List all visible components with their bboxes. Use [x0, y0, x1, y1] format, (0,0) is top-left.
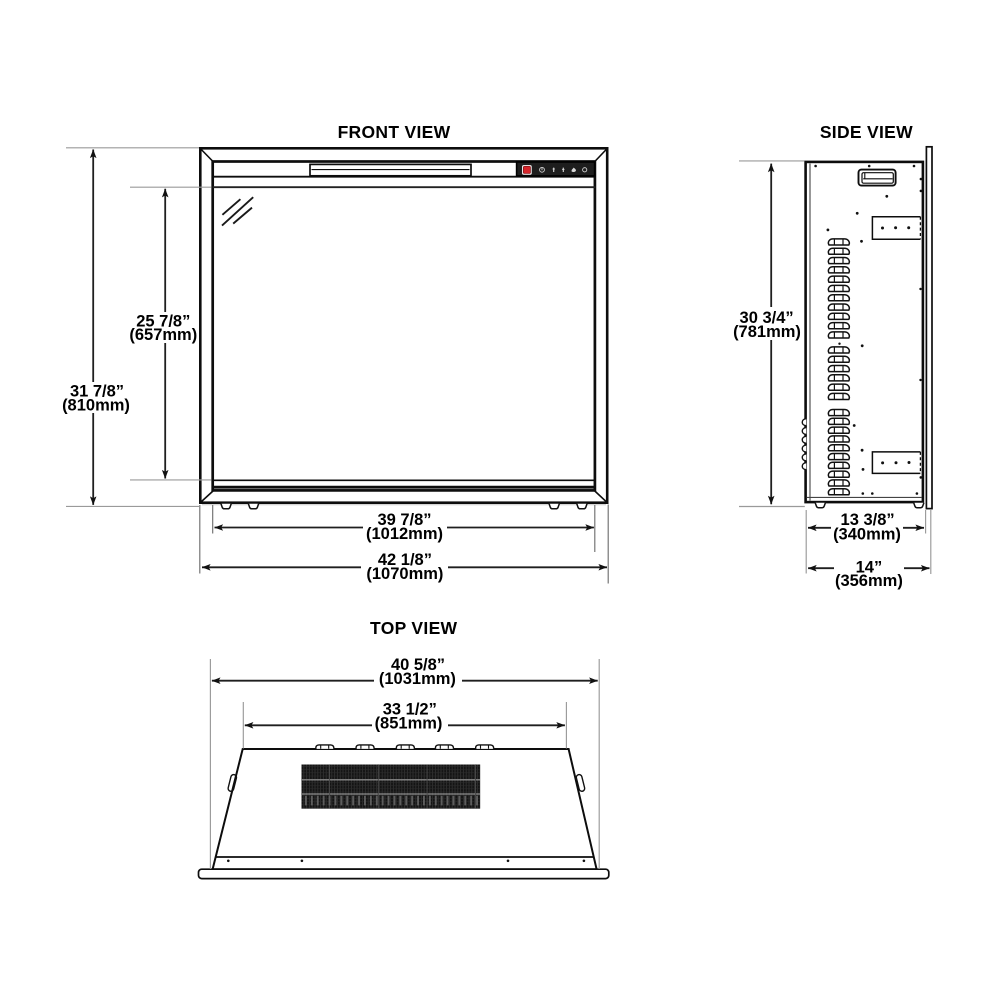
svg-text:(810mm): (810mm)	[62, 396, 130, 414]
svg-text:FRONT VIEW: FRONT VIEW	[338, 122, 451, 142]
svg-text:(1070mm): (1070mm)	[366, 565, 443, 583]
svg-text:(340mm): (340mm)	[833, 525, 901, 543]
svg-text:(1031mm): (1031mm)	[379, 670, 456, 688]
svg-text:SIDE VIEW: SIDE VIEW	[820, 122, 913, 142]
svg-text:(657mm): (657mm)	[129, 326, 197, 344]
svg-text:(356mm): (356mm)	[835, 572, 903, 590]
svg-text:(851mm): (851mm)	[375, 715, 443, 733]
svg-text:TOP VIEW: TOP VIEW	[370, 618, 458, 638]
svg-text:(1012mm): (1012mm)	[366, 525, 443, 543]
svg-text:(781mm): (781mm)	[733, 323, 801, 341]
